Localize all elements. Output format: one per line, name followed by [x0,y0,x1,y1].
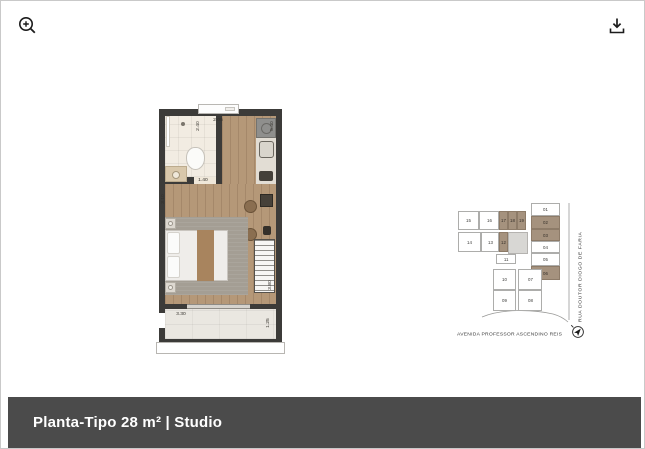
facade-strip [156,342,285,354]
bed-runner [197,230,214,281]
dimension-label: 3.30 [175,312,187,317]
keyplan-unit-07: 07 [518,269,542,290]
building-keyplan: 15161718191413121101020304050610070908 A… [456,201,588,347]
keyplan-unit-16: 16 [479,211,499,230]
keyplan-unit-13: 13 [481,232,499,252]
dimension-label: 2.40 [196,120,201,132]
dimension-label: 2.05 [212,118,224,123]
stool [244,200,257,213]
dimension-label: 1.40 [197,178,209,183]
plan-title-bar: Planta-Tipo 28 m² | Studio [8,397,641,448]
lamp [168,221,173,226]
dimension-label: 1.25 [266,317,271,329]
keyplan-unit-19: 19 [517,211,526,230]
pillow [167,232,180,254]
dimension-label: 5.40 [270,120,275,132]
keyplan-unit-10: 10 [493,269,516,290]
shower-head [181,122,185,126]
keyplan-unit-11: 11 [496,254,516,264]
keyplan-unit-17: 17 [499,211,508,230]
studio-floor-plan: 2.40 2.05 1.40 3.10 5.40 3.80 3.30 1.25 [159,109,282,354]
keyplan-unit-15: 15 [458,211,479,230]
keyplan-unit-02: 02 [531,216,560,229]
keyplan-unit-03: 03 [531,229,560,241]
keyplan-unit-14: 14 [458,232,481,252]
north-arrow-icon [570,324,585,339]
zoom-in-icon [16,26,40,41]
keyplan-unit-05: 05 [531,253,560,266]
balcony-wall-opening [159,313,165,328]
bathroom-vanity [165,166,187,182]
street-label-bottom: AVENIDA PROFESSOR ASCENDINO REIS [457,331,562,337]
microwave [260,194,273,207]
ac-condenser-unit [198,104,239,114]
keyplan-unit-01: 01 [531,203,560,216]
floorplan-viewer: 2.40 2.05 1.40 3.10 5.40 3.80 3.30 1.25 … [0,0,645,449]
keyplan-unit-04: 04 [531,241,560,253]
bathroom-sink [172,171,180,179]
download-button[interactable] [605,14,629,38]
cooktop [259,171,273,181]
lamp [168,285,173,290]
keyplan-unit-12: 12 [499,232,508,252]
nightstand [165,218,176,229]
keyplan-unit-18: 18 [508,211,517,230]
dimension-label: 3.80 [268,279,273,291]
side-table [263,226,271,235]
keyplan-unit-09: 09 [493,290,516,311]
shower-glass-panel [166,116,170,147]
download-icon [605,26,629,41]
nightstand [165,282,176,293]
kitchen-sink [259,141,274,158]
toilet [186,147,205,170]
dimension-label: 3.10 [161,193,166,205]
plan-title: Planta-Tipo 28 m² | Studio [8,397,641,448]
street-label-right: RUA DOUTOR DIOGO DE FARIA [577,232,583,322]
zoom-in-button[interactable] [16,14,40,38]
keyplan-unit-08: 08 [518,290,542,311]
keyplan-units: 15161718191413121101020304050610070908 [456,201,588,347]
pillow [167,256,180,278]
